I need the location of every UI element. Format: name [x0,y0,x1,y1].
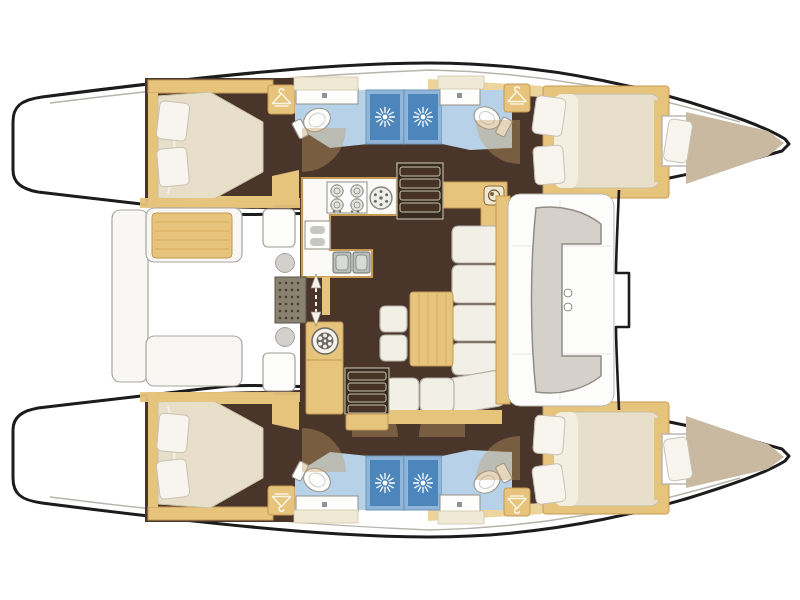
utility-cabinet [306,322,343,414]
sofa-cushion [420,378,454,412]
sofa-cushion [386,378,419,412]
sofa-cushion [452,305,500,341]
galley-sinks [333,252,370,273]
oven-icon [305,221,330,249]
cockpit-bench-aft [146,336,242,386]
stairs-port-hull [397,163,443,219]
counter-end-trim [322,277,330,315]
cupholder-icon [564,289,572,297]
stool-cushion [380,335,407,361]
trampoline-edge [616,190,629,410]
cupholder-icon [564,303,572,311]
cockpit-bench-side [112,210,148,382]
aft-cockpit [112,208,242,386]
stair-landing [346,414,388,430]
sofa-cushion [452,226,500,263]
stove [327,182,367,213]
entry-mat [275,277,306,323]
catamaran-floorplan [0,0,800,600]
forward-cockpit [508,194,614,406]
cockpit-table [152,213,232,258]
sofa-cushion [452,265,500,303]
round-hob-icon [370,187,392,209]
saloon-aft-trim [388,410,502,424]
stairs-starboard-hull [345,368,389,430]
fan-hatch-icon [312,328,338,354]
stool-cushion [380,306,407,332]
floorplan-image: Sailing catamaran interior floor plan, t… [0,0,800,600]
saloon-table [410,292,453,366]
